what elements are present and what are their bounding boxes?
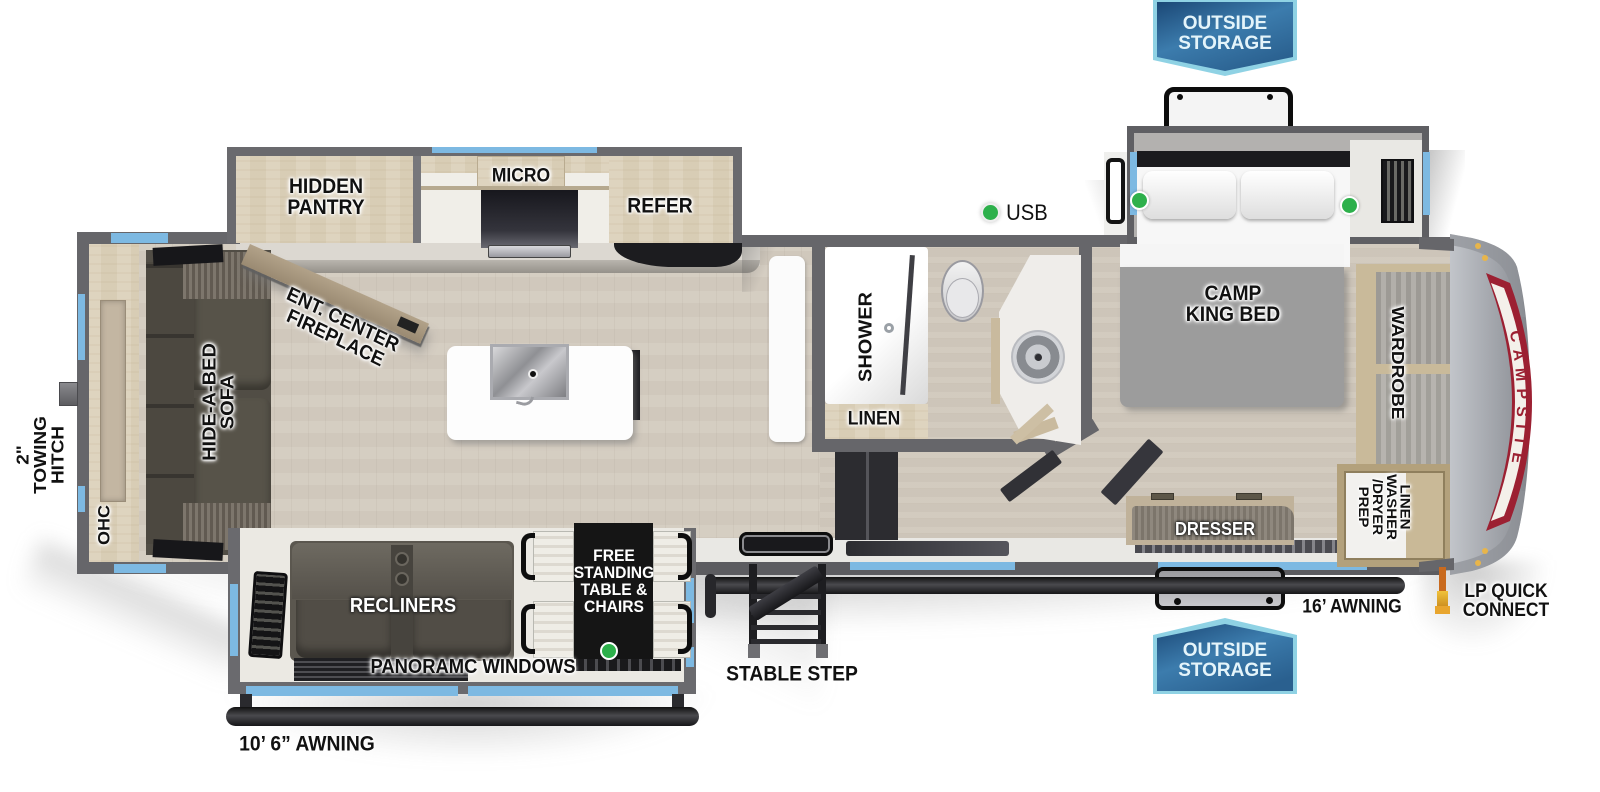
svg-text:STORAGE: STORAGE	[1178, 660, 1272, 681]
svg-text:OUTSIDE: OUTSIDE	[1183, 13, 1267, 34]
svg-text:STORAGE: STORAGE	[1178, 33, 1272, 54]
svg-text:OUTSIDE: OUTSIDE	[1183, 640, 1267, 661]
